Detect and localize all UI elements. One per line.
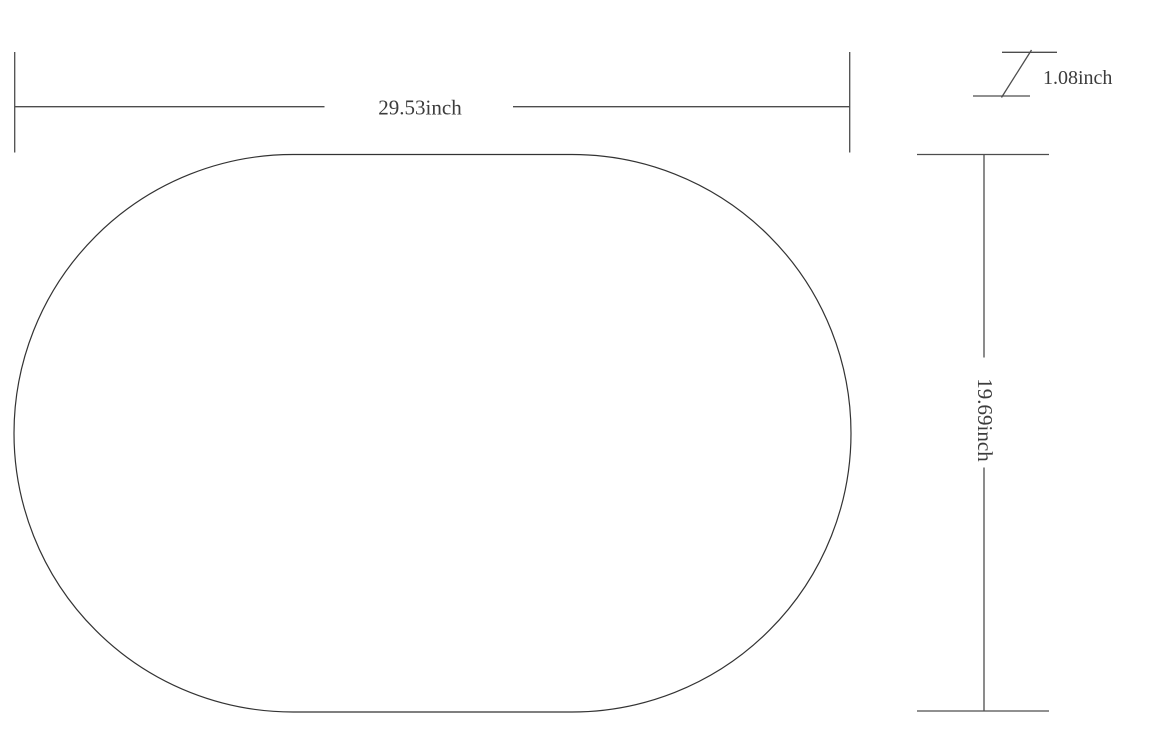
svg-text:19.69inch: 19.69inch [973,378,997,462]
svg-text:29.53inch: 29.53inch [378,96,462,120]
svg-text:1.08inch: 1.08inch [1043,67,1112,89]
